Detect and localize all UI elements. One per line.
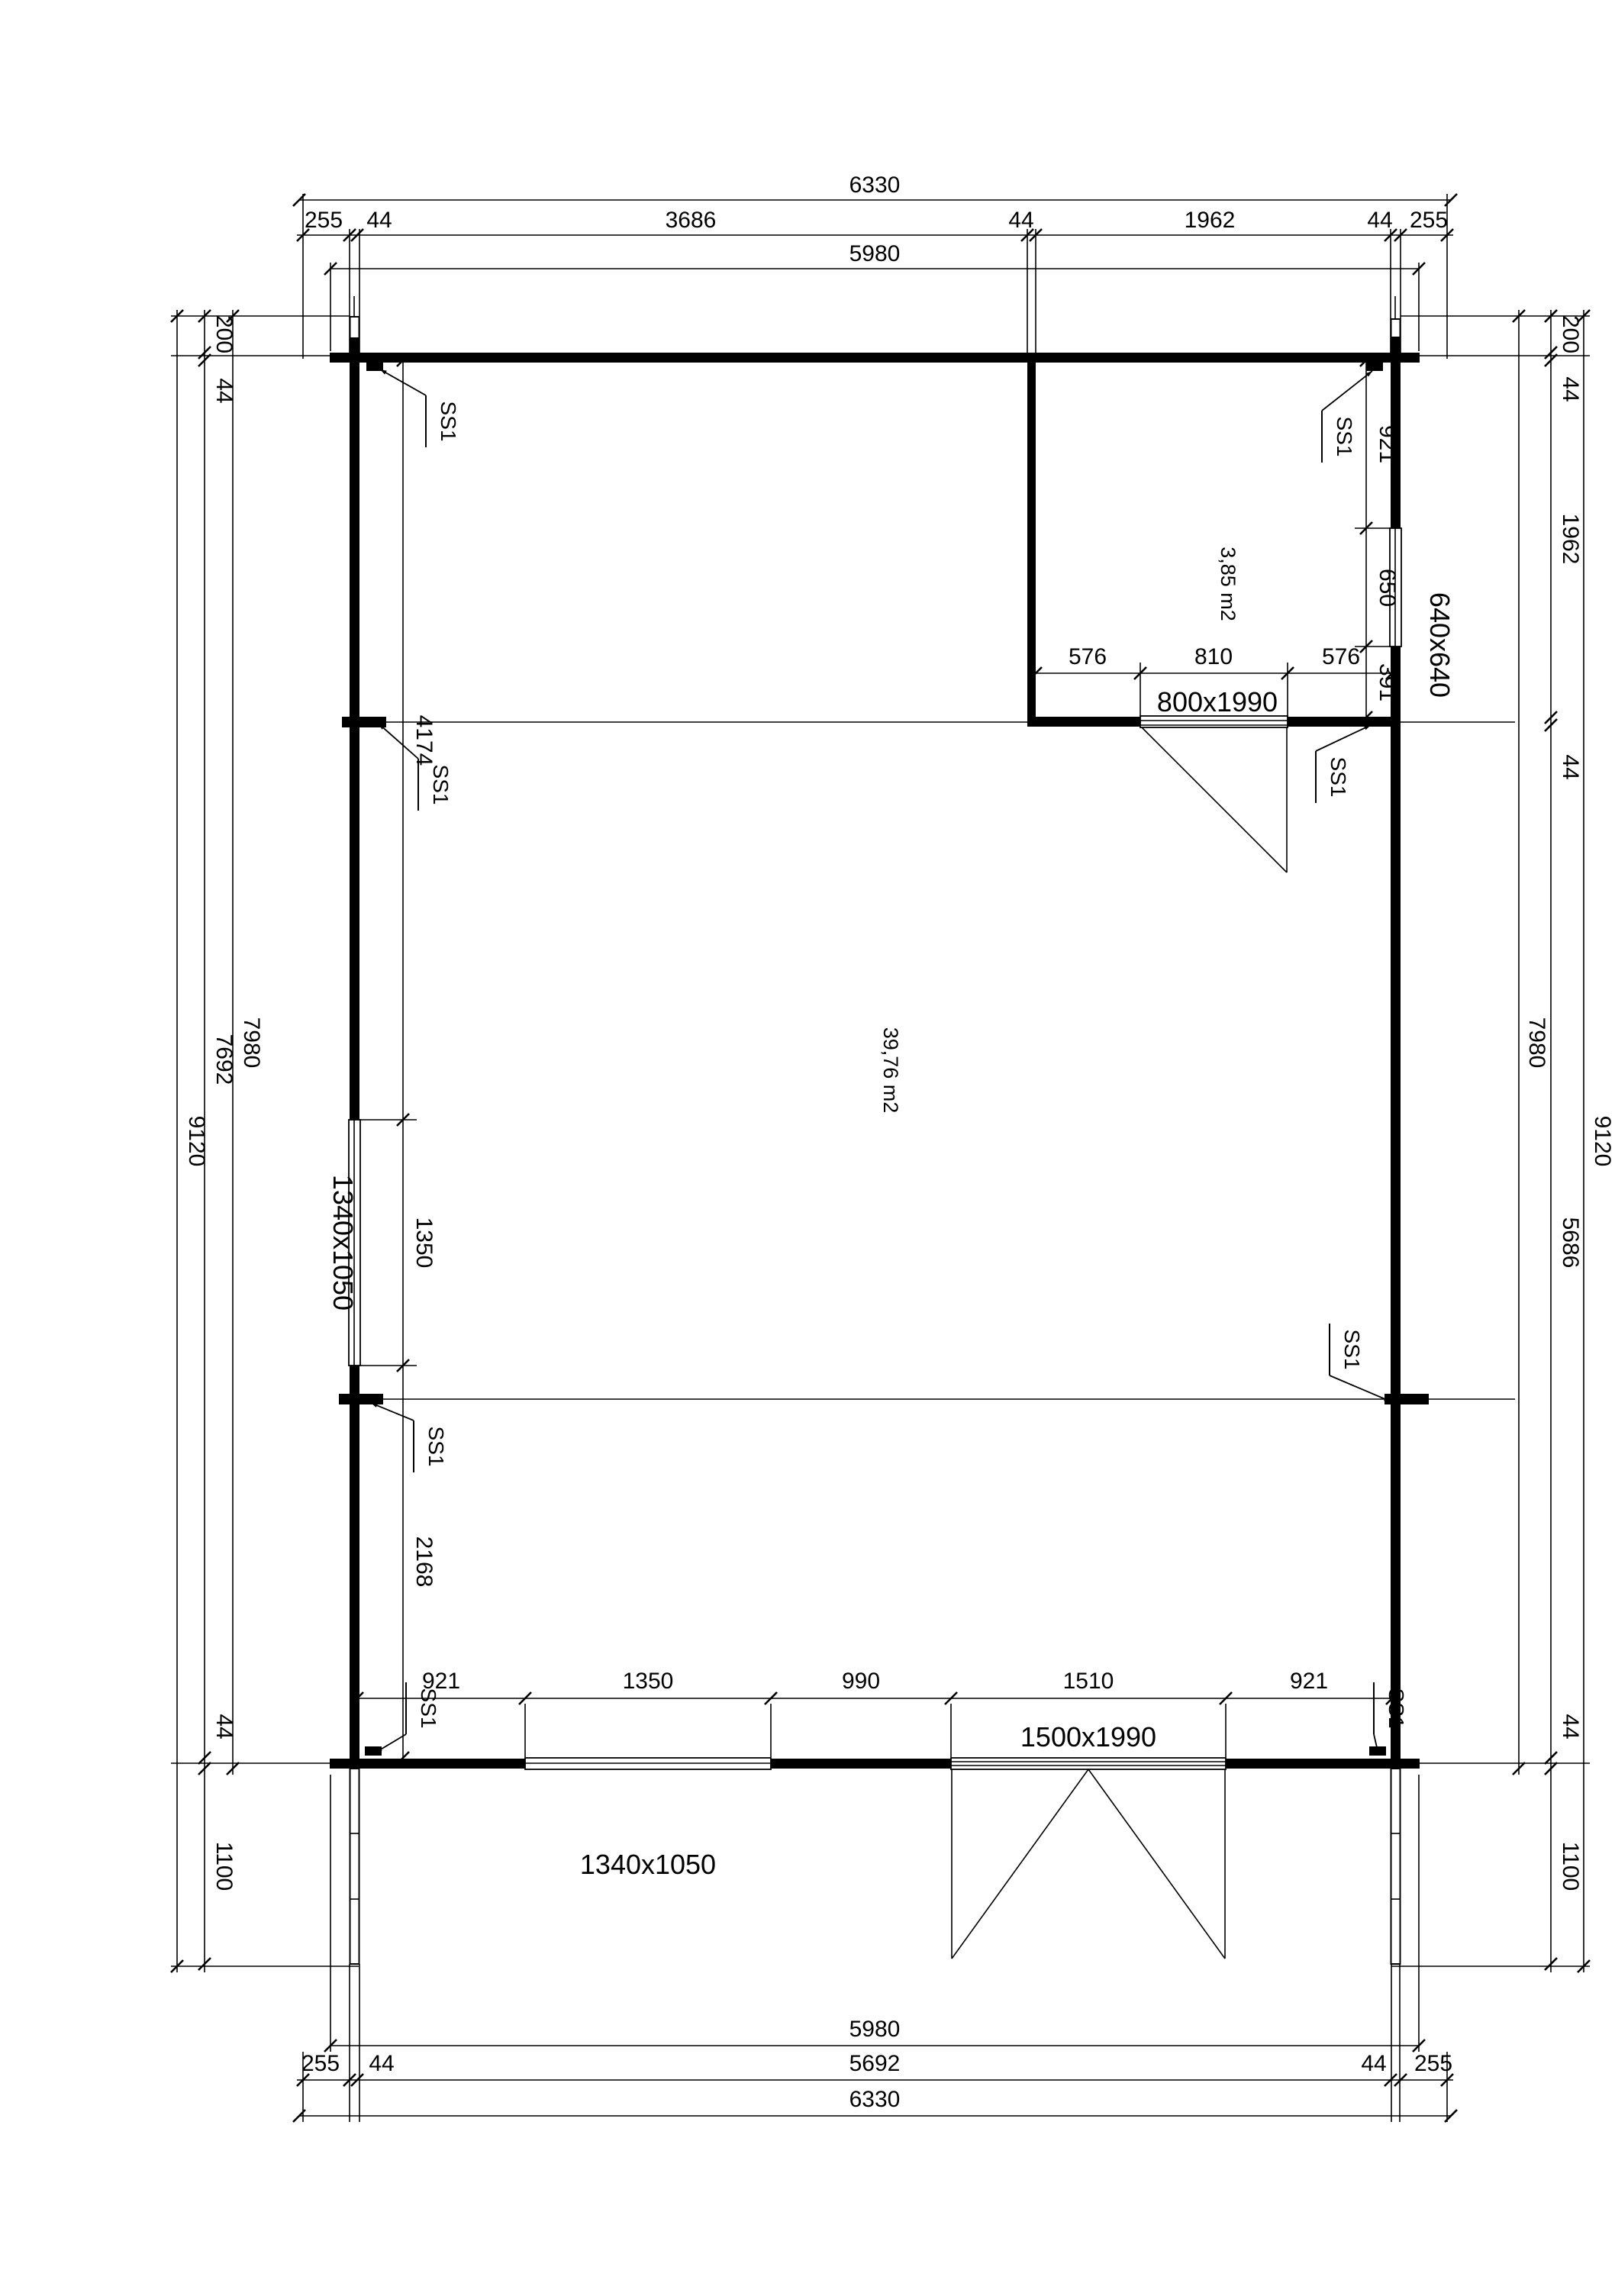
dim-right-chain-2: 1962: [1558, 514, 1583, 565]
post-top-right: [1366, 363, 1383, 371]
ss1-leader: [371, 1403, 414, 1420]
dim-int-left-1: 1350: [411, 1217, 437, 1269]
dim-bottom-chain-3: 44: [1361, 2051, 1386, 2076]
ss1-leader: [1316, 725, 1371, 751]
dim-int-left-2: 2168: [411, 1537, 437, 1588]
dim-bot-int-2: 990: [842, 1669, 880, 1694]
wall-left: [350, 353, 359, 1769]
ss1-marker-top-left: SS1: [437, 401, 460, 442]
dim-top-chain-2: 3686: [666, 208, 717, 233]
floor-plan-sheet: 6330 255 44 3686 44 1962 44 255 5980 576…: [0, 0, 1615, 2296]
small-room-area-label: 3,85 m2: [1217, 547, 1239, 621]
front-door-label: 1500x1990: [1020, 1721, 1156, 1753]
dim-left-chain-1: 44: [211, 378, 237, 403]
dim-left-chain-3: 44: [211, 1714, 237, 1739]
left-window-label: 1340x1050: [327, 1175, 359, 1311]
left-terrace-post: [350, 1769, 359, 1964]
dim-top-chain-6: 255: [1410, 208, 1448, 233]
dim-room-top-1: 810: [1194, 644, 1233, 669]
dim-top-chain-0: 255: [305, 208, 343, 233]
ss1-marker-bottom-right: SS1: [1385, 1688, 1408, 1729]
dim-left-total: 9120: [184, 1116, 209, 1167]
dim-room-top-0: 576: [1069, 644, 1107, 669]
dim-room-right-0: 921: [1375, 425, 1400, 463]
wall-top: [330, 353, 1420, 363]
dim-top-total: 6330: [849, 173, 901, 198]
ss1-leader: [1322, 371, 1372, 411]
dim-top-inner: 5980: [849, 241, 901, 266]
dim-bot-int-4: 921: [1290, 1669, 1328, 1694]
dim-room-right-2: 391: [1375, 663, 1400, 701]
dim-right-chain-6: 1100: [1558, 1842, 1583, 1891]
dim-room-right-1: 650: [1375, 569, 1400, 607]
dim-right-chain-5: 44: [1558, 1714, 1583, 1739]
dim-right-chain-4: 5686: [1558, 1217, 1583, 1269]
interior-door-label: 800x1990: [1157, 686, 1278, 717]
dim-room-top-2: 576: [1322, 644, 1360, 669]
main-room-area-label: 39,76 m2: [879, 1027, 902, 1114]
wall-partition: [1027, 353, 1036, 727]
right-window-label: 640x640: [1424, 592, 1455, 698]
dim-left-chain-2: 7692: [211, 1034, 237, 1085]
dim-bottom-chain-4: 255: [1414, 2051, 1452, 2076]
dim-bottom-chain-2: 5692: [849, 2051, 901, 2076]
ss1-marker-mid-right-1: SS1: [1326, 757, 1350, 798]
floor-plan-drawing: 6330 255 44 3686 44 1962 44 255 5980 576…: [0, 0, 1615, 2296]
ss1-leader-arrow: [380, 369, 387, 375]
plan-geometry: [171, 194, 1590, 2122]
ss1-leader: [1330, 1375, 1391, 1401]
log-end-top-right: [1391, 337, 1401, 353]
dim-right-chain-3: 44: [1558, 754, 1583, 779]
log-tail-top-right: [1391, 319, 1401, 337]
dim-top-chain-1: 44: [366, 208, 392, 233]
ss1-marker-mid-right-2: SS1: [1340, 1330, 1364, 1370]
ss1-marker-top-right: SS1: [1333, 417, 1356, 457]
dim-right-wall: 7980: [1524, 1017, 1549, 1069]
interior-door-swing: [1142, 727, 1287, 872]
dim-top-chain-4: 1962: [1185, 208, 1236, 233]
dim-top-chain-3: 44: [1008, 208, 1033, 233]
dim-bot-int-3: 1510: [1063, 1669, 1114, 1694]
dim-right-chain-0: 200: [1558, 315, 1583, 353]
bottom-window-label: 1340x1050: [580, 1849, 716, 1880]
front-door-swing: [1088, 1769, 1225, 1959]
front-door-opening: [951, 1758, 1226, 1769]
dim-left-chain-4: 1100: [211, 1842, 237, 1891]
dim-left-chain-0: 200: [211, 315, 237, 353]
log-end-top-left: [350, 338, 359, 353]
front-door-swing: [952, 1769, 1088, 1959]
dim-bot-int-1: 1350: [623, 1669, 674, 1694]
dim-bottom-total: 6330: [849, 2087, 901, 2112]
ss1-leader-arrow: [1364, 725, 1371, 730]
ss1-marker-mid-left-1: SS1: [429, 765, 453, 805]
ss1-marker-bottom-left: SS1: [417, 1688, 440, 1729]
dim-top-chain-5: 44: [1367, 208, 1392, 233]
dim-left-wall: 7980: [239, 1017, 264, 1069]
dim-right-chain-1: 44: [1558, 376, 1583, 401]
log-tail-top-left: [350, 317, 359, 338]
dim-bottom-chain-0: 255: [301, 2051, 340, 2076]
ss1-leader-arrow: [371, 1403, 378, 1408]
right-terrace-post: [1391, 1769, 1401, 1964]
dim-int-left-0: 4174: [411, 715, 437, 766]
ss1-marker-mid-left-2: SS1: [424, 1427, 448, 1467]
wall-bottom: [330, 1759, 1420, 1769]
dim-bottom-inner: 5980: [849, 2017, 901, 2042]
dim-right-total: 9120: [1590, 1116, 1615, 1167]
dim-bottom-chain-1: 44: [369, 2051, 394, 2076]
